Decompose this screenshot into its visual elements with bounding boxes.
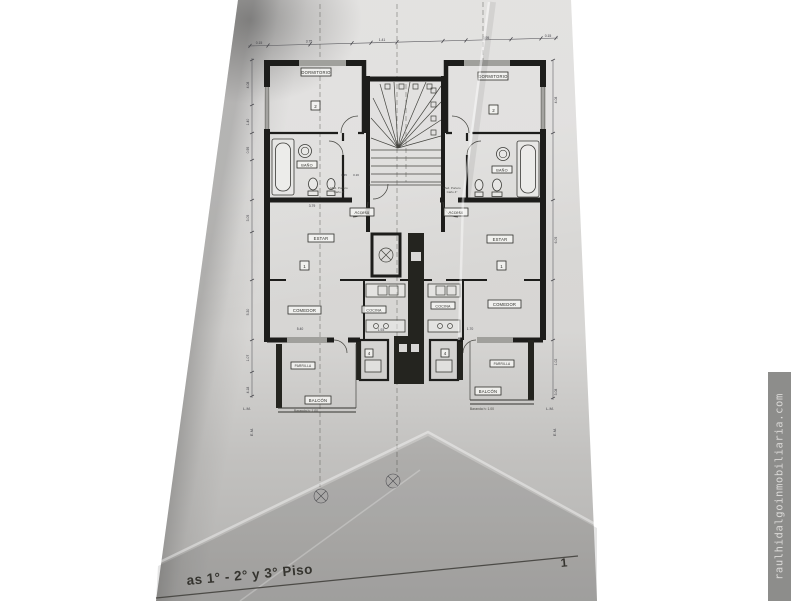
floor-plan-drawing: 0.15 3.75 1.41 3.95 0.15 4.08 1.40 0.95 … (0, 0, 801, 601)
dim-left-5: 1.07 (246, 355, 250, 362)
label-grill-right: PARRILLA (494, 362, 511, 366)
edge-label-em-left: E.M. (249, 428, 254, 436)
watermark-strip: raulhidalgoinmobiliaria.com (768, 372, 791, 601)
dim-right-1: 6.05 (554, 237, 558, 244)
dim-left-3: 3.05 (246, 215, 250, 222)
edge-label-em-right: E.M. (552, 428, 557, 436)
label-grill-left: PARRILLA (295, 364, 312, 368)
label-bath-left: BAÑO (301, 162, 313, 167)
staircase (371, 82, 441, 199)
label-living-right: ESTAR (493, 237, 508, 242)
label-dining-left: COMEDOR (293, 308, 316, 313)
dim-top-2: 1.41 (379, 38, 386, 42)
dim-left-2: 0.95 (246, 147, 250, 154)
dim-right-0: 4.08 (554, 97, 558, 104)
label-balcony-left: BALCÓN (309, 398, 327, 403)
dimension-chain-top: 0.15 3.75 1.41 3.95 0.15 (248, 34, 558, 48)
dim-left-0: 4.08 (246, 82, 250, 89)
dim-inner-4: 1.93 (378, 328, 385, 332)
label-bath-right: BAÑO (496, 167, 508, 172)
paper-creases (156, 2, 597, 601)
dim-top-0: 0.15 (256, 41, 263, 45)
balcony-note-left: Baranda h: 1.00 (294, 409, 318, 413)
label-kitchen-right: COCINA (435, 304, 451, 308)
edge-label-lm-right: L.M. (546, 406, 554, 411)
dim-inner-1: 1.45 (341, 173, 347, 177)
dim-left-1: 1.40 (246, 119, 250, 126)
dim-top-4: 0.15 (545, 34, 552, 38)
watermark-text: raulhidalgoinmobiliaria.com (774, 393, 786, 580)
label-entry-left: Acceso (355, 210, 370, 215)
dim-inner-2: 0.16 (353, 173, 359, 177)
dimension-chain-left: 4.08 1.40 0.95 3.05 5.30 1.07 4.18 (246, 58, 254, 398)
label-dining-right: COMEDOR (493, 302, 516, 307)
dim-top-1: 3.75 (306, 40, 313, 44)
dim-left-6: 4.18 (246, 387, 250, 394)
dim-inner-5: 1.70 (467, 327, 474, 331)
label-living-left: ESTAR (314, 236, 329, 241)
dim-right-3: 3.08 (554, 389, 558, 396)
note-cano-left: Caño 4" (334, 190, 345, 194)
balcony-note-right: Baranda h: 1.00 (470, 407, 494, 411)
dim-inner-0: 3.79 (309, 204, 316, 208)
edge-label-lm-left: L.M. (243, 406, 251, 411)
note-cano-right: Caño 4" (447, 190, 458, 194)
dim-left-4: 5.30 (246, 309, 250, 316)
dim-inner-3: 5.40 (297, 327, 304, 331)
dim-right-2: 1.02 (554, 359, 558, 366)
dimension-chain-right: 4.08 6.05 1.02 3.08 (551, 59, 558, 400)
photo-of-floor-plan: 0.15 3.75 1.41 3.95 0.15 4.08 1.40 0.95 … (0, 0, 801, 601)
label-kitchen-left: COCINA (366, 308, 382, 312)
door-arcs (334, 116, 476, 353)
label-bedroom-left: DORMITORIO (301, 70, 331, 75)
label-balcony-right: BALCÓN (479, 389, 497, 394)
